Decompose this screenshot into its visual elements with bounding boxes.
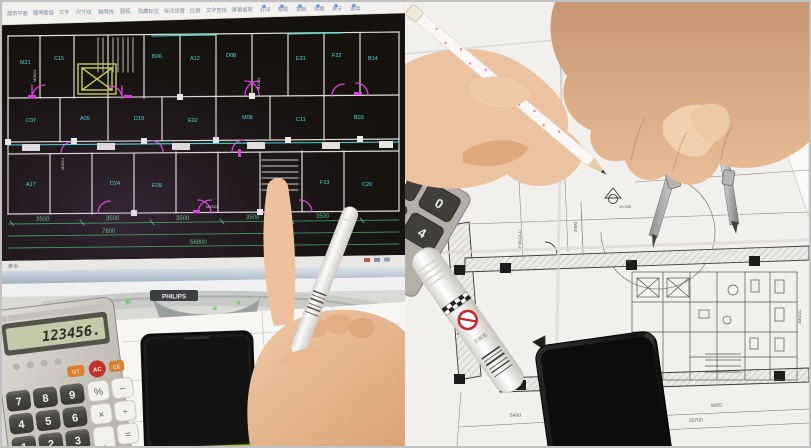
svg-text:✳: ✳ [124,297,132,307]
smartphone-right [534,330,674,446]
menu-item: 轴网线 [98,8,114,16]
svg-text:CE: CE [113,364,122,371]
svg-text:✳: ✳ [236,300,241,307]
photo-collage: M21 C15 B06 A12 D08 E31 F22 B14 C07 A05 … [0,0,811,448]
left-scene: M21 C15 B06 A12 D08 E31 F22 B14 C07 A05 … [2,2,405,446]
right-scene: 5400 9000 20700 2000 200 1F3E(14-1) FM甲1… [405,2,809,446]
menu-item: 尺寸线 [76,8,92,16]
menu-item: 屏幕旋转 [232,6,253,14]
menu-item: 比例 [190,6,200,14]
menu-item: 图库图层 [33,9,54,17]
dim-20700: 20700 [689,417,703,424]
door-label-2: JM1521 [797,309,802,324]
menu-item: 圆弧 [120,7,131,15]
dim-200: 200 [625,258,632,263]
right-photo-blueprint-desk: 5400 9000 20700 2000 200 1F3E(14-1) FM甲1… [405,2,809,446]
menu-item: 隐藏标注 [138,7,159,15]
menu-item: 文字 [59,8,69,16]
level-label: ±0.000 [619,204,632,209]
menu-item: 标注设置 [164,7,185,15]
svg-text:✳: ✳ [212,305,218,313]
axis-label: 1F3E(14-1) [517,229,522,250]
command-text: 命令: [8,263,19,270]
dim-5400: 5400 [510,412,522,419]
menu-item: 建筑平面 [7,9,28,17]
philips-logo: PHILIPS [162,294,186,301]
dim-2000: 2000 [573,221,578,232]
smartphone-left [140,330,257,446]
menu-item: 文字查找 [206,6,228,14]
dim-9000: 9000 [711,402,723,409]
left-photo-cad-workstation: M21 C15 B06 A12 D08 E31 F22 B14 C07 A05 … [2,2,405,446]
svg-text:AC: AC [93,367,103,374]
svg-text:GT: GT [72,369,81,376]
svg-text:%: % [94,386,104,398]
